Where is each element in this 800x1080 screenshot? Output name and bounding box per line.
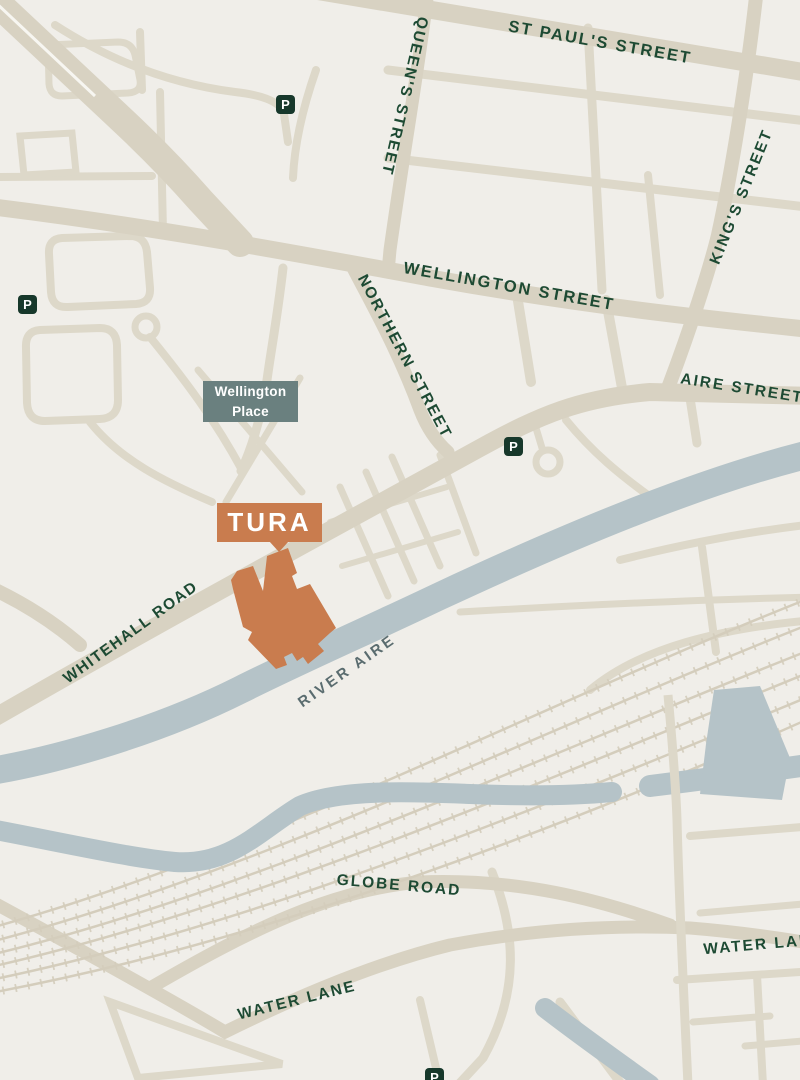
tura-marker-label: TURA xyxy=(227,507,311,537)
bridge-road xyxy=(668,695,688,1080)
map-canvas xyxy=(0,0,800,1080)
site-location-map: ST PAUL'S STREET QUEEN'S STREET KING'S S… xyxy=(0,0,800,1080)
parking-icon: P xyxy=(276,95,295,114)
tura-marker-pointer xyxy=(269,541,289,552)
parking-icon: P xyxy=(504,437,523,456)
tura-marker: TURA xyxy=(217,503,322,542)
parking-icon: P xyxy=(18,295,37,314)
parking-icon: P xyxy=(425,1068,444,1080)
wellington-place-marker: Wellington Place xyxy=(203,381,298,422)
